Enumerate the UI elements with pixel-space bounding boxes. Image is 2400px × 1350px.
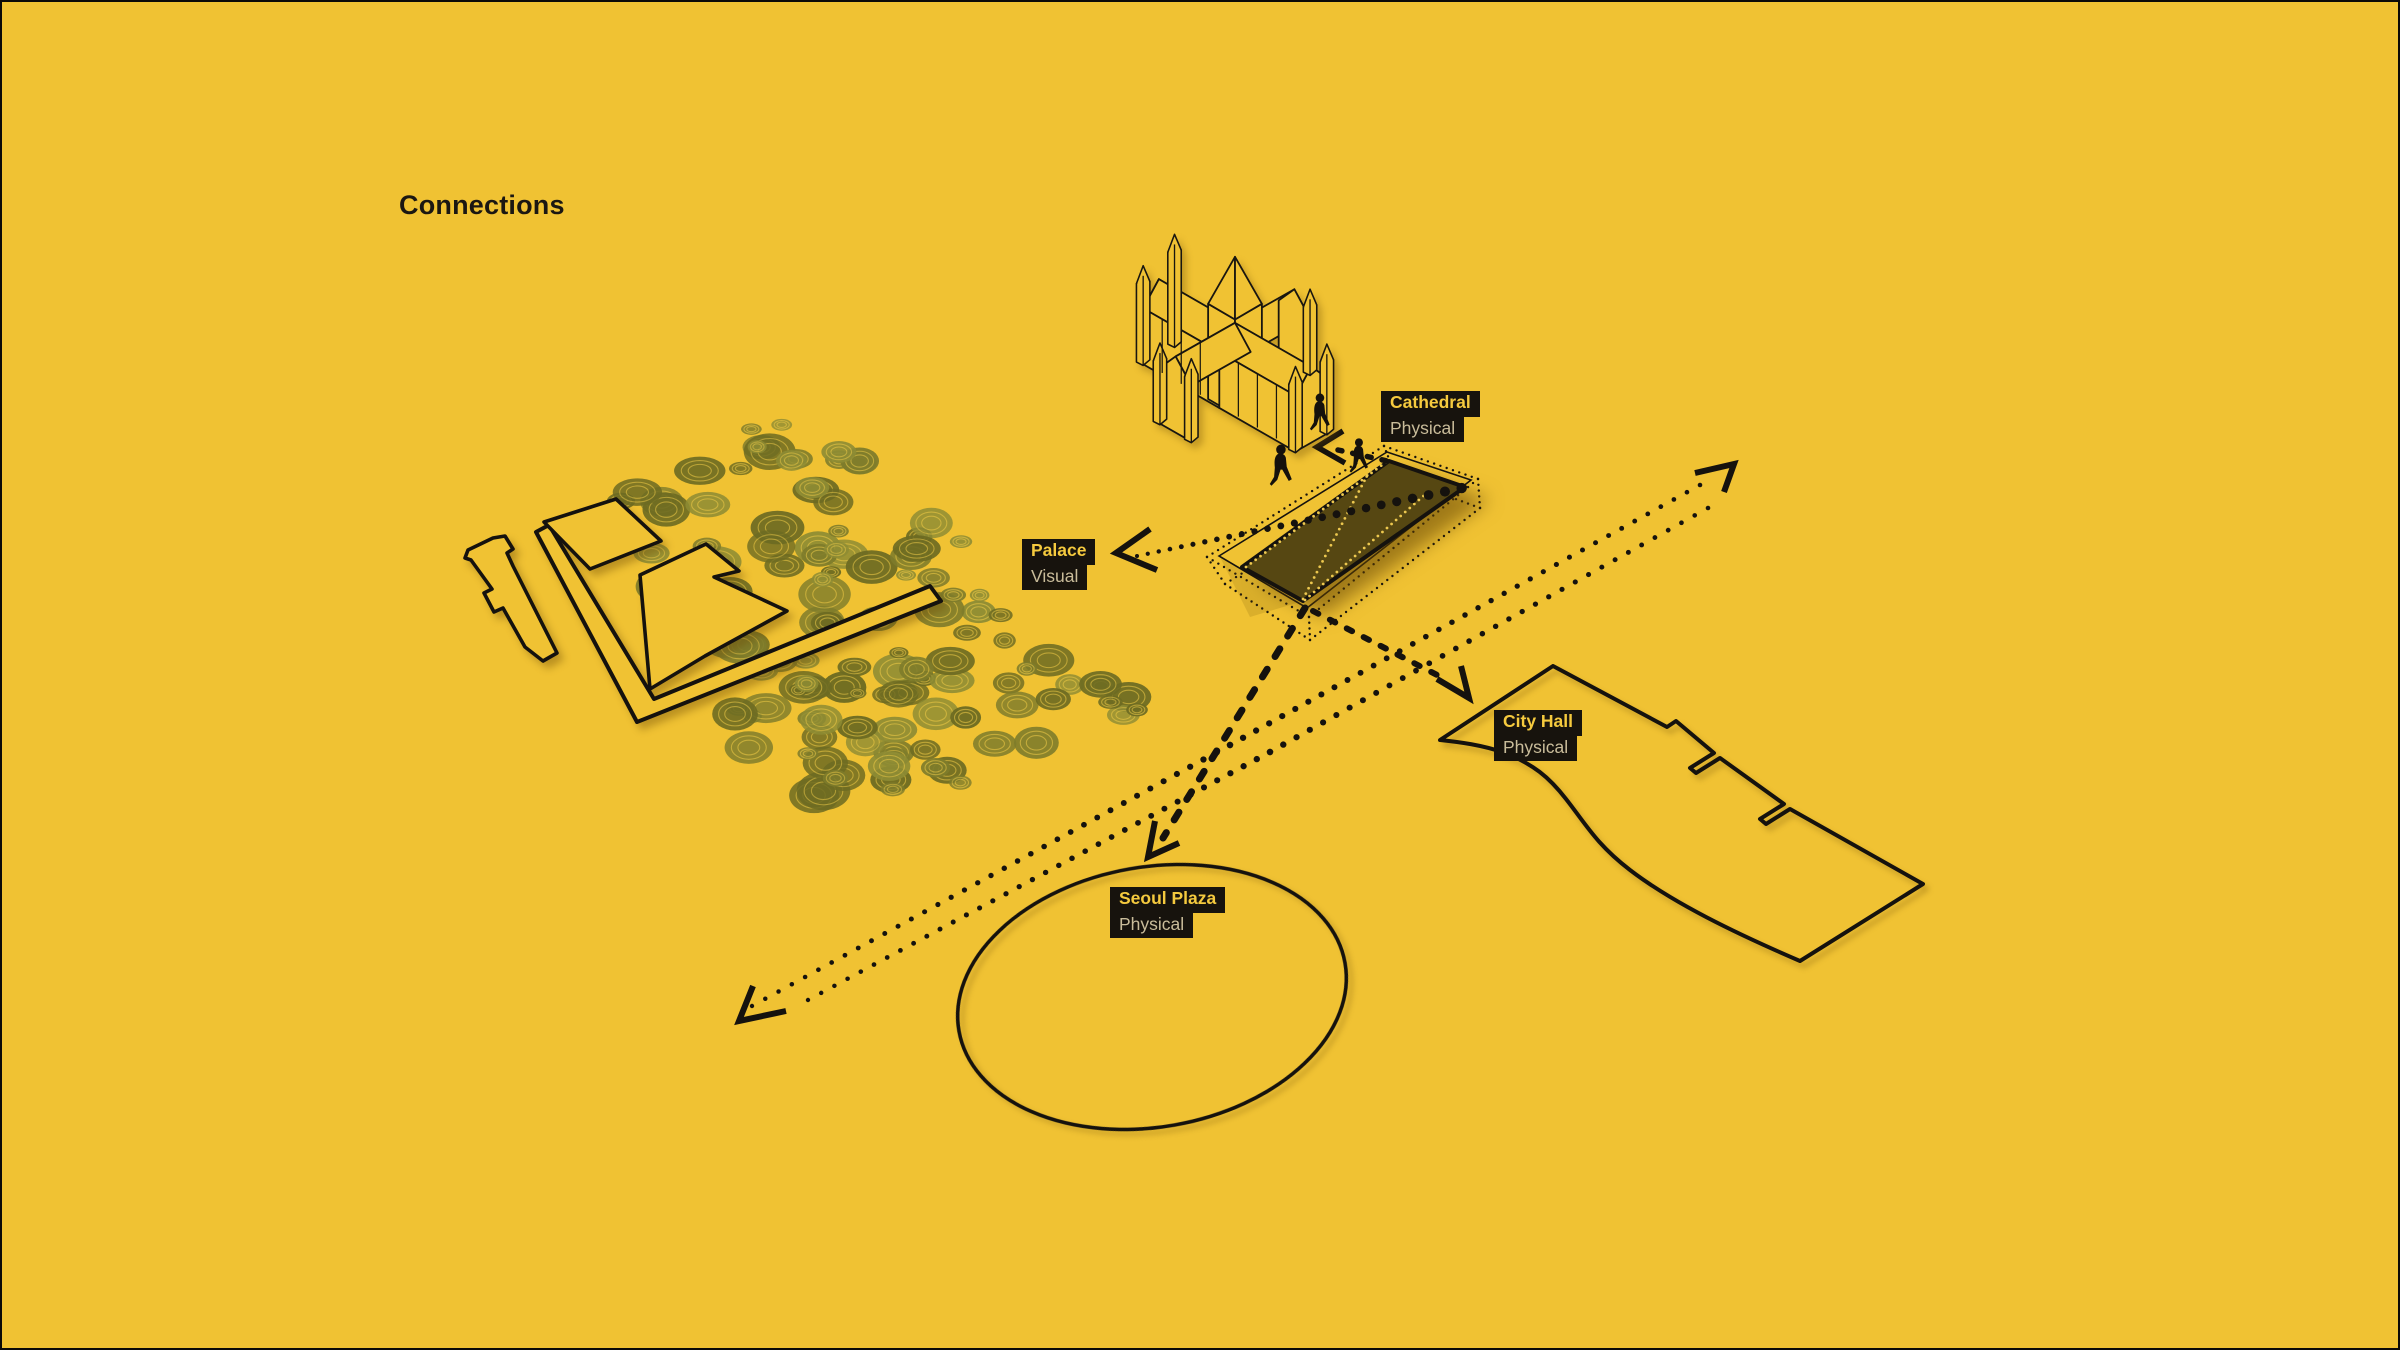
palace-label: Palace Visual [1022, 539, 1095, 590]
seoul-plaza-outline [936, 835, 1367, 1159]
city-hall-label-type: Physical [1494, 736, 1577, 762]
diagram-canvas [0, 0, 2400, 1350]
cathedral-label-type: Physical [1381, 417, 1464, 443]
palace-label-name: Palace [1022, 539, 1095, 565]
cathedral-label-name: Cathedral [1381, 391, 1480, 417]
palace-gate-strip [465, 536, 557, 661]
connections-diagram: Connections Cathedral Physical Palace Vi… [0, 0, 2400, 1350]
cathedral-label: Cathedral Physical [1381, 391, 1480, 442]
ray-to-seoul-plaza [1163, 608, 1305, 838]
seoul-plaza-label-type: Physical [1110, 913, 1193, 939]
page-title: Connections [399, 190, 565, 221]
palace-label-type: Visual [1022, 565, 1087, 591]
seoul-plaza-label-name: Seoul Plaza [1110, 887, 1225, 913]
city-hall-label: City Hall Physical [1494, 710, 1582, 761]
pedestrian-icon [1270, 445, 1292, 486]
palace-arrowhead-icon [1116, 529, 1157, 570]
cathedral-drawing [1136, 234, 1333, 452]
seoul-plaza-label: Seoul Plaza Physical [1110, 887, 1225, 938]
city-hall-arrowhead-icon [1437, 666, 1469, 698]
site-building [1219, 452, 1471, 617]
corridor-arrow-upper-right-icon [1695, 464, 1734, 492]
palace-buildings-outline [465, 499, 941, 722]
ray-to-city-hall [1313, 611, 1441, 677]
city-hall-label-name: City Hall [1494, 710, 1582, 736]
